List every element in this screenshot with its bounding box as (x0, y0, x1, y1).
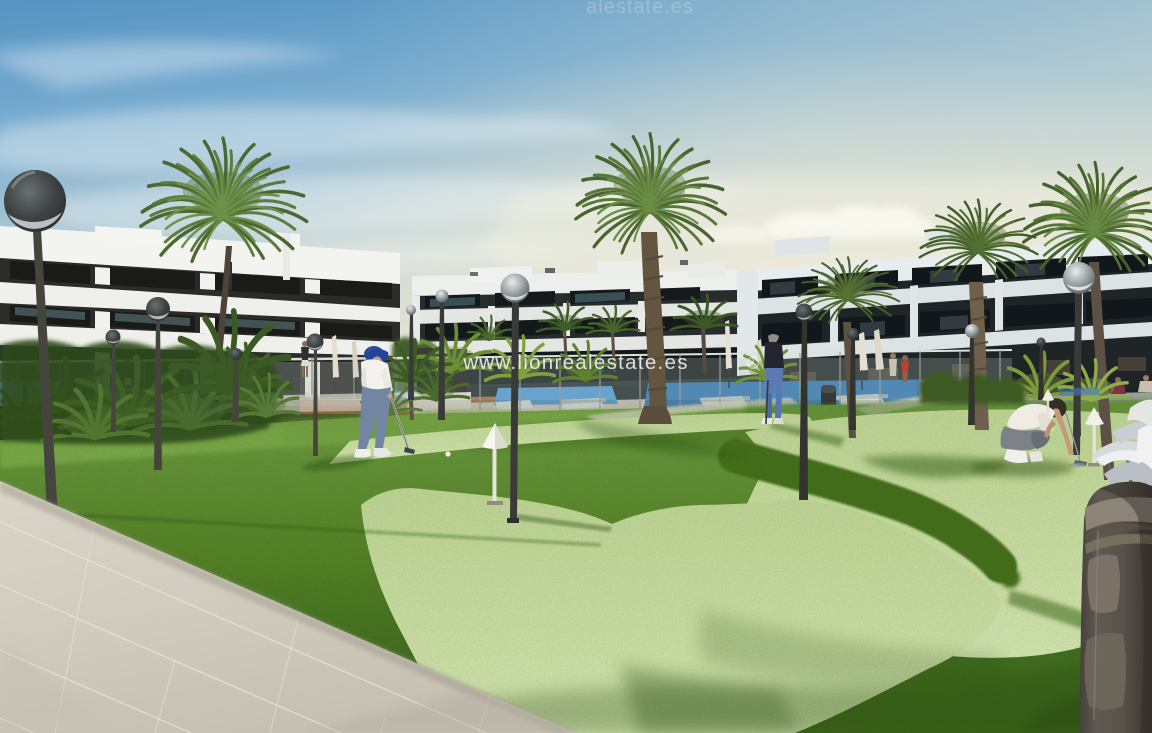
svg-text:alestate.es: alestate.es (586, 0, 694, 18)
svg-text:www.lionrealestate.es: www.lionrealestate.es (462, 351, 689, 374)
